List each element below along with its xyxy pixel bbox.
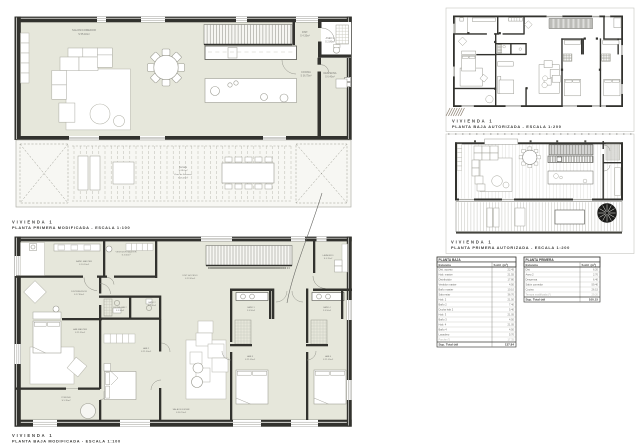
svg-text:S 10.10m²: S 10.10m² bbox=[79, 263, 89, 266]
svg-text:29.20: 29.20 bbox=[592, 293, 599, 297]
svg-text:BAÑO 4: BAÑO 4 bbox=[323, 306, 331, 309]
svg-text:Cocina: Cocina bbox=[526, 288, 535, 292]
svg-text:59.40: 59.40 bbox=[592, 283, 599, 287]
svg-text:21.55: 21.55 bbox=[508, 273, 515, 277]
svg-text:21.05: 21.05 bbox=[508, 313, 515, 317]
svg-text:S 36.75m²: S 36.75m² bbox=[300, 75, 311, 78]
svg-text:Aseo 2: Aseo 2 bbox=[526, 273, 535, 277]
svg-text:VIVIENDA 1: VIVIENDA 1 bbox=[12, 433, 54, 438]
svg-text:Despensa: Despensa bbox=[526, 278, 538, 282]
svg-text:DISTRIBUIDOR: DISTRIBUIDOR bbox=[71, 291, 87, 293]
svg-text:S 5.35m²: S 5.35m² bbox=[62, 399, 71, 402]
svg-text:PORCHE: PORCHE bbox=[61, 397, 71, 399]
svg-text:S.útil (m²): S.útil (m²) bbox=[582, 263, 597, 267]
svg-text:Zona de Solanera: Zona de Solanera bbox=[174, 173, 192, 176]
svg-text:LAVADERO: LAVADERO bbox=[322, 254, 333, 257]
svg-text:Lavadero: Lavadero bbox=[439, 333, 450, 337]
svg-text:2.70: 2.70 bbox=[593, 273, 599, 277]
svg-text:COCINA: COCINA bbox=[301, 71, 311, 74]
svg-text:Vestidor master: Vestidor master bbox=[439, 283, 457, 287]
svg-text:Estancia: Estancia bbox=[526, 263, 539, 267]
svg-text:Sala estar: Sala estar bbox=[439, 293, 451, 297]
svg-text:HAB MASTER: HAB MASTER bbox=[73, 328, 88, 331]
svg-text:S 36.70m²: S 36.70m² bbox=[176, 411, 186, 414]
svg-text:HAB 2: HAB 2 bbox=[143, 347, 150, 350]
svg-text:Hab. 3: Hab. 3 bbox=[439, 313, 447, 317]
svg-text:Baño 2: Baño 2 bbox=[439, 303, 448, 307]
svg-text:S 21.05m²: S 21.05m² bbox=[323, 358, 333, 361]
svg-text:21.05: 21.05 bbox=[508, 323, 515, 327]
svg-text:DIST.: DIST. bbox=[302, 31, 308, 34]
svg-text:VESTIDOR MASTER: VESTIDOR MASTER bbox=[116, 251, 137, 254]
svg-text:Hab. master: Hab. master bbox=[439, 273, 453, 277]
svg-text:137.84: 137.84 bbox=[505, 343, 515, 347]
svg-text:BAÑO 3: BAÑO 3 bbox=[247, 306, 255, 309]
svg-text:VIVIENDA 1: VIVIENDA 1 bbox=[451, 239, 493, 244]
svg-text:26.15: 26.15 bbox=[592, 288, 599, 292]
svg-text:5.70: 5.70 bbox=[509, 333, 515, 337]
svg-text:Estancia: Estancia bbox=[439, 263, 452, 267]
svg-text:S 6.40m²: S 6.40m² bbox=[325, 75, 335, 78]
svg-text:BAÑO MASTER: BAÑO MASTER bbox=[76, 260, 92, 263]
svg-text:6.40: 6.40 bbox=[593, 278, 599, 282]
svg-text:6.20: 6.20 bbox=[593, 268, 599, 272]
svg-text:Dist. acceso: Dist. acceso bbox=[439, 268, 454, 272]
svg-text:S 4.50m²: S 4.50m² bbox=[323, 309, 331, 312]
svg-text:PLANTA PRIMERA MODIFICADA -: PLANTA PRIMERA MODIFICADA - ESCALA 1:100 bbox=[12, 225, 130, 230]
svg-text:PLANTA BAJA: PLANTA BAJA bbox=[439, 258, 462, 262]
svg-text:DIST. ACCESO: DIST. ACCESO bbox=[182, 274, 197, 277]
svg-text:Ducha hab 2: Ducha hab 2 bbox=[439, 308, 454, 312]
svg-text:S.útil (m²): S.útil (m²) bbox=[494, 263, 509, 267]
svg-text:S 69.0m²: S 69.0m² bbox=[179, 169, 188, 172]
svg-text:S 55.40m²: S 55.40m² bbox=[78, 33, 90, 36]
svg-text:Baño 3: Baño 3 bbox=[439, 318, 448, 322]
svg-text:Terraza modificada (*): Terraza modificada (*) bbox=[526, 293, 552, 297]
svg-text:PLANTA BAJA MODIFICADA - ES: PLANTA BAJA MODIFICADA - ESCALA 1:100 bbox=[12, 439, 121, 444]
svg-text:S 4.50m²: S 4.50m² bbox=[122, 254, 131, 257]
svg-text:VIVIENDA 1: VIVIENDA 1 bbox=[452, 119, 494, 124]
svg-text:Porche (*): Porche (*) bbox=[439, 338, 451, 342]
svg-text:Hab. 2: Hab. 2 bbox=[439, 298, 447, 302]
svg-text:Hab. 4: Hab. 4 bbox=[439, 323, 447, 327]
svg-text:17.35: 17.35 bbox=[508, 338, 515, 342]
svg-text:S 2.80m²: S 2.80m² bbox=[325, 40, 335, 43]
svg-text:S 7.40m²: S 7.40m² bbox=[148, 304, 156, 307]
svg-text:Salón comedor: Salón comedor bbox=[526, 283, 544, 287]
svg-text:22.45: 22.45 bbox=[508, 268, 515, 272]
svg-text:S 17.80m²: S 17.80m² bbox=[74, 293, 84, 296]
svg-text:S 4.50m²: S 4.50m² bbox=[247, 309, 255, 312]
svg-text:10.10: 10.10 bbox=[508, 288, 515, 292]
svg-text:SALON/COMEDOR: SALON/COMEDOR bbox=[72, 28, 96, 32]
svg-text:Distribuidor: Distribuidor bbox=[439, 278, 452, 282]
svg-text:PLANTA PRIMERA: PLANTA PRIMERA bbox=[526, 258, 555, 262]
svg-text:HAB 3: HAB 3 bbox=[247, 355, 254, 358]
svg-text:PLANTA PRIMERA AUTORIZADA -: PLANTA PRIMERA AUTORIZADA - ESCALA 1:200 bbox=[451, 245, 570, 250]
svg-text:4.50: 4.50 bbox=[509, 328, 515, 332]
svg-text:S 6.70m²: S 6.70m² bbox=[324, 257, 333, 260]
svg-text:4.50: 4.50 bbox=[509, 283, 515, 287]
svg-text:DUCHA HAB 2: DUCHA HAB 2 bbox=[113, 306, 127, 309]
svg-text:VIVIENDA 1: VIVIENDA 1 bbox=[12, 220, 54, 225]
svg-text:Baño master: Baño master bbox=[439, 288, 454, 292]
svg-text:S 21.05m²: S 21.05m² bbox=[245, 358, 255, 361]
svg-text:SALA DE ESTAR: SALA DE ESTAR bbox=[173, 408, 190, 411]
svg-text:S 21.50m²: S 21.50m² bbox=[141, 350, 151, 353]
svg-text:21.50: 21.50 bbox=[508, 298, 515, 302]
svg-text:S 22.45m²: S 22.45m² bbox=[185, 277, 195, 280]
svg-text:Sup. Total útil: Sup. Total útil bbox=[526, 298, 546, 302]
svg-text:S 05.45m²: S 05.45m² bbox=[178, 176, 188, 179]
svg-text:HAB 4: HAB 4 bbox=[325, 355, 332, 358]
svg-text:36.70: 36.70 bbox=[508, 293, 515, 297]
svg-text:17.80: 17.80 bbox=[508, 278, 515, 282]
svg-text:Sup. Total útil: Sup. Total útil bbox=[439, 343, 459, 347]
svg-text:Dist: Dist bbox=[526, 268, 531, 272]
svg-text:5.40: 5.40 bbox=[509, 308, 515, 312]
svg-text:PLANTA BAJA AUTORIZADA - ES: PLANTA BAJA AUTORIZADA - ESCALA 1:200 bbox=[452, 124, 562, 129]
svg-text:S 5.30m²: S 5.30m² bbox=[116, 309, 124, 312]
svg-text:100.15: 100.15 bbox=[589, 298, 599, 302]
svg-text:S 21.55m²: S 21.55m² bbox=[75, 331, 85, 334]
svg-text:BAÑO 2: BAÑO 2 bbox=[148, 301, 156, 304]
svg-text:7.40: 7.40 bbox=[509, 303, 515, 307]
svg-text:Baño 4: Baño 4 bbox=[439, 328, 448, 332]
svg-text:S 4.35m²: S 4.35m² bbox=[300, 35, 310, 38]
svg-text:Terraza: Terraza bbox=[179, 166, 187, 169]
svg-text:4.50: 4.50 bbox=[509, 318, 515, 322]
